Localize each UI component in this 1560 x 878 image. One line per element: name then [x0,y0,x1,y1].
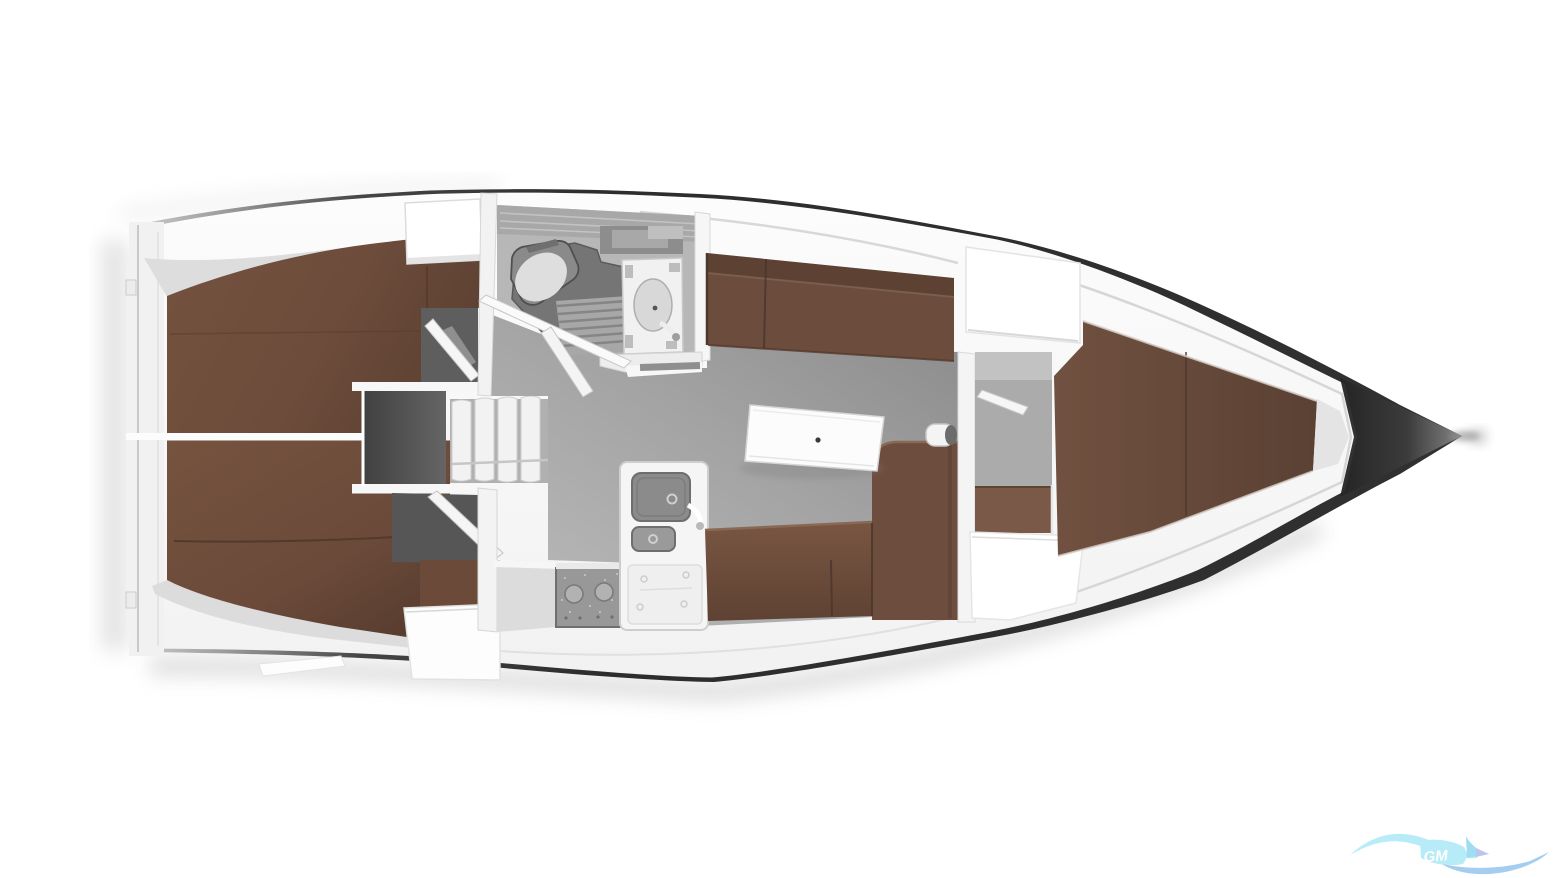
svg-text:GM: GM [1423,847,1449,866]
